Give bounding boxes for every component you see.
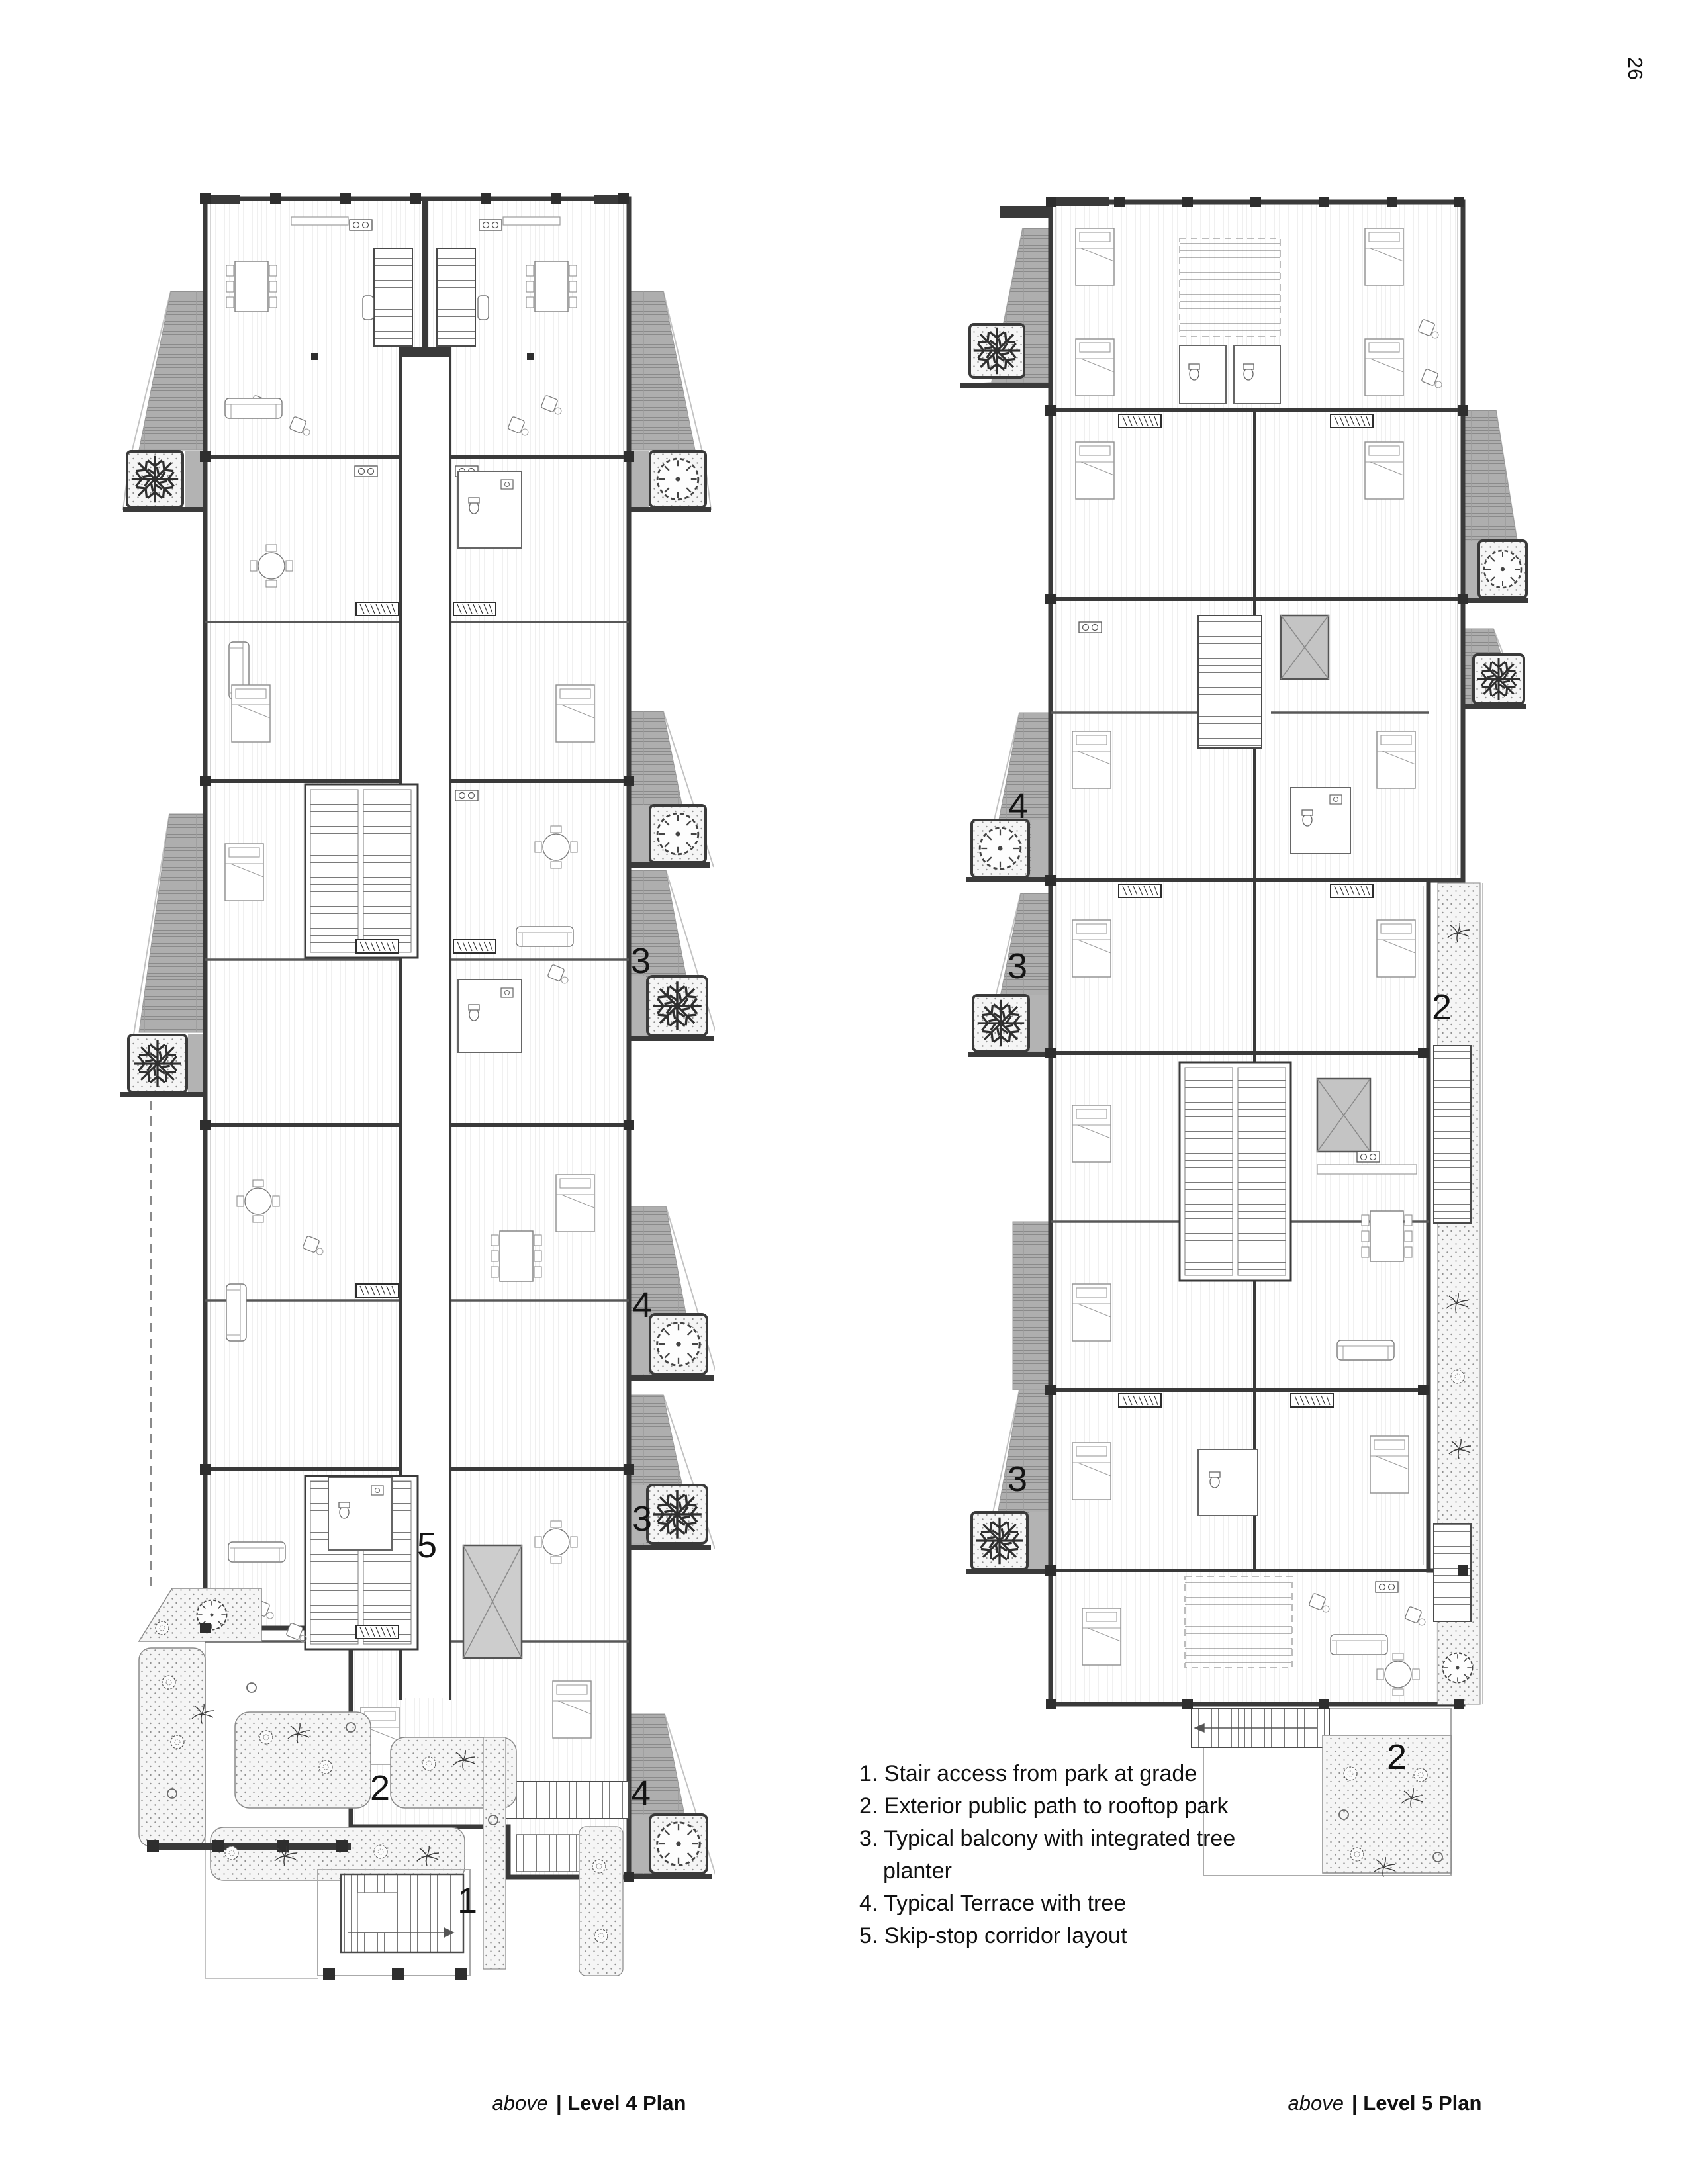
plan-annotation-terrace: 4 [632, 1287, 652, 1323]
legend-item-2: 2. Exterior public path to rooftop park [859, 1790, 1309, 1823]
tree-branch-icon [978, 1000, 1024, 1046]
plan-annotation-stair: 1 [457, 1883, 477, 1919]
plan-annotation-terrace: 4 [631, 1776, 651, 1811]
legend-item-5: 5. Skip-stop corridor layout [859, 1920, 1309, 1952]
level-5-floor-plan [920, 192, 1529, 1979]
plan-annotation-balcony: 3 [631, 943, 651, 979]
stove-icon [455, 790, 478, 801]
level-4-floor-plan [93, 185, 715, 1985]
wardrobe-icon [453, 940, 496, 953]
stove-icon [479, 220, 502, 230]
wardrobe-icon [356, 1625, 399, 1639]
stair [1180, 238, 1280, 336]
legend-item-3-cont: planter [859, 1855, 1309, 1888]
tree-canopy-icon [980, 828, 1021, 869]
shrub-icon [1350, 1848, 1364, 1861]
planter-ring-icon [247, 1683, 256, 1692]
wardrobe-icon [1331, 884, 1373, 897]
sink-icon [501, 480, 513, 489]
plan-annotation-balcony: 3 [632, 1501, 652, 1537]
sink-icon [501, 988, 513, 997]
toilet-icon [469, 498, 479, 514]
legend-item-4: 4. Typical Terrace with tree [859, 1888, 1309, 1920]
shrub-icon [592, 1860, 606, 1873]
wardrobe-icon [356, 940, 399, 953]
stair [1185, 1576, 1292, 1668]
plan-annotation-balcony: 3 [1008, 948, 1027, 984]
plan-annotation-path: 2 [1387, 1739, 1407, 1775]
plan-annotation-corridor: 5 [417, 1527, 437, 1563]
legend-item-3: 3. Typical balcony with integrated tree [859, 1823, 1309, 1855]
caption-level-5: above| Level 5 Plan [1288, 2091, 1482, 2115]
caption-plan-label: | Level 5 Plan [1352, 2091, 1482, 2115]
tree-branch-icon [976, 1518, 1023, 1564]
tree-branch-icon [653, 1490, 702, 1539]
page-number: 26 [1623, 57, 1647, 81]
plan-annotation-path: 2 [1432, 989, 1452, 1025]
stove-icon [1357, 1152, 1380, 1162]
wardrobe-icon [1331, 414, 1373, 428]
tree-branch-icon [132, 456, 178, 502]
caption-level-4: above| Level 4 Plan [492, 2091, 686, 2115]
toilet-icon [1243, 364, 1254, 380]
stove-icon [1376, 1582, 1398, 1592]
plan-annotation-path: 2 [370, 1770, 390, 1806]
toilet-icon [1189, 364, 1199, 380]
wardrobe-icon [1119, 414, 1161, 428]
toilet-icon [339, 1502, 350, 1518]
wardrobe-icon [1119, 1394, 1161, 1407]
caption-above-label: above [1288, 2091, 1344, 2115]
sink-icon [1330, 795, 1342, 804]
legend-item-1: 1. Stair access from park at grade [859, 1758, 1309, 1790]
wardrobe-icon [1291, 1394, 1333, 1407]
shrub-icon [259, 1731, 273, 1744]
tree-canopy-icon [657, 813, 698, 854]
shrub-icon [162, 1676, 175, 1689]
shrub-icon [594, 1929, 608, 1942]
shrub-icon [1414, 1768, 1427, 1782]
shrub-icon [374, 1845, 387, 1858]
tree-canopy-icon [657, 1823, 700, 1865]
plan-legend: 1. Stair access from park at grade 2. Ex… [859, 1758, 1309, 1952]
shrub-icon [422, 1757, 436, 1770]
wardrobe-icon [453, 602, 496, 615]
shrub-icon [225, 1846, 238, 1860]
plan-annotation-terrace: 4 [1008, 788, 1028, 824]
toilet-icon [1209, 1472, 1220, 1488]
shrub-icon [319, 1760, 332, 1774]
path-stair [1434, 1046, 1471, 1223]
sink-icon [371, 1486, 383, 1495]
wardrobe-icon [1119, 884, 1161, 897]
tree-branch-icon [134, 1040, 181, 1087]
shrub-icon [156, 1621, 169, 1635]
plan-annotation-balcony: 3 [1008, 1461, 1027, 1497]
shrub-icon [1451, 1370, 1464, 1383]
toilet-icon [469, 1005, 479, 1021]
wardrobe-icon [356, 1284, 399, 1297]
stair [1198, 615, 1262, 748]
wardrobe-icon [356, 602, 399, 615]
toilet-icon [1302, 810, 1313, 826]
tree-canopy-icon [657, 459, 698, 500]
caption-above-label: above [492, 2091, 548, 2115]
tree-canopy-icon [657, 1323, 700, 1365]
stove-icon [355, 466, 377, 477]
tree-canopy-icon [1484, 551, 1521, 588]
tree-branch-icon [653, 981, 702, 1030]
shrub-icon [171, 1735, 184, 1749]
tree-canopy-icon [1443, 1653, 1473, 1683]
shrub-icon [1344, 1767, 1357, 1780]
tree-branch-icon [974, 328, 1020, 374]
stove-icon [1079, 622, 1102, 633]
tree-branch-icon [1477, 658, 1520, 700]
caption-plan-label: | Level 4 Plan [556, 2091, 686, 2115]
stove-icon [350, 220, 372, 230]
portfolio-page: 3 4 3 4 5 2 1 4 3 2 3 2 1. Stair access … [0, 0, 1688, 2184]
